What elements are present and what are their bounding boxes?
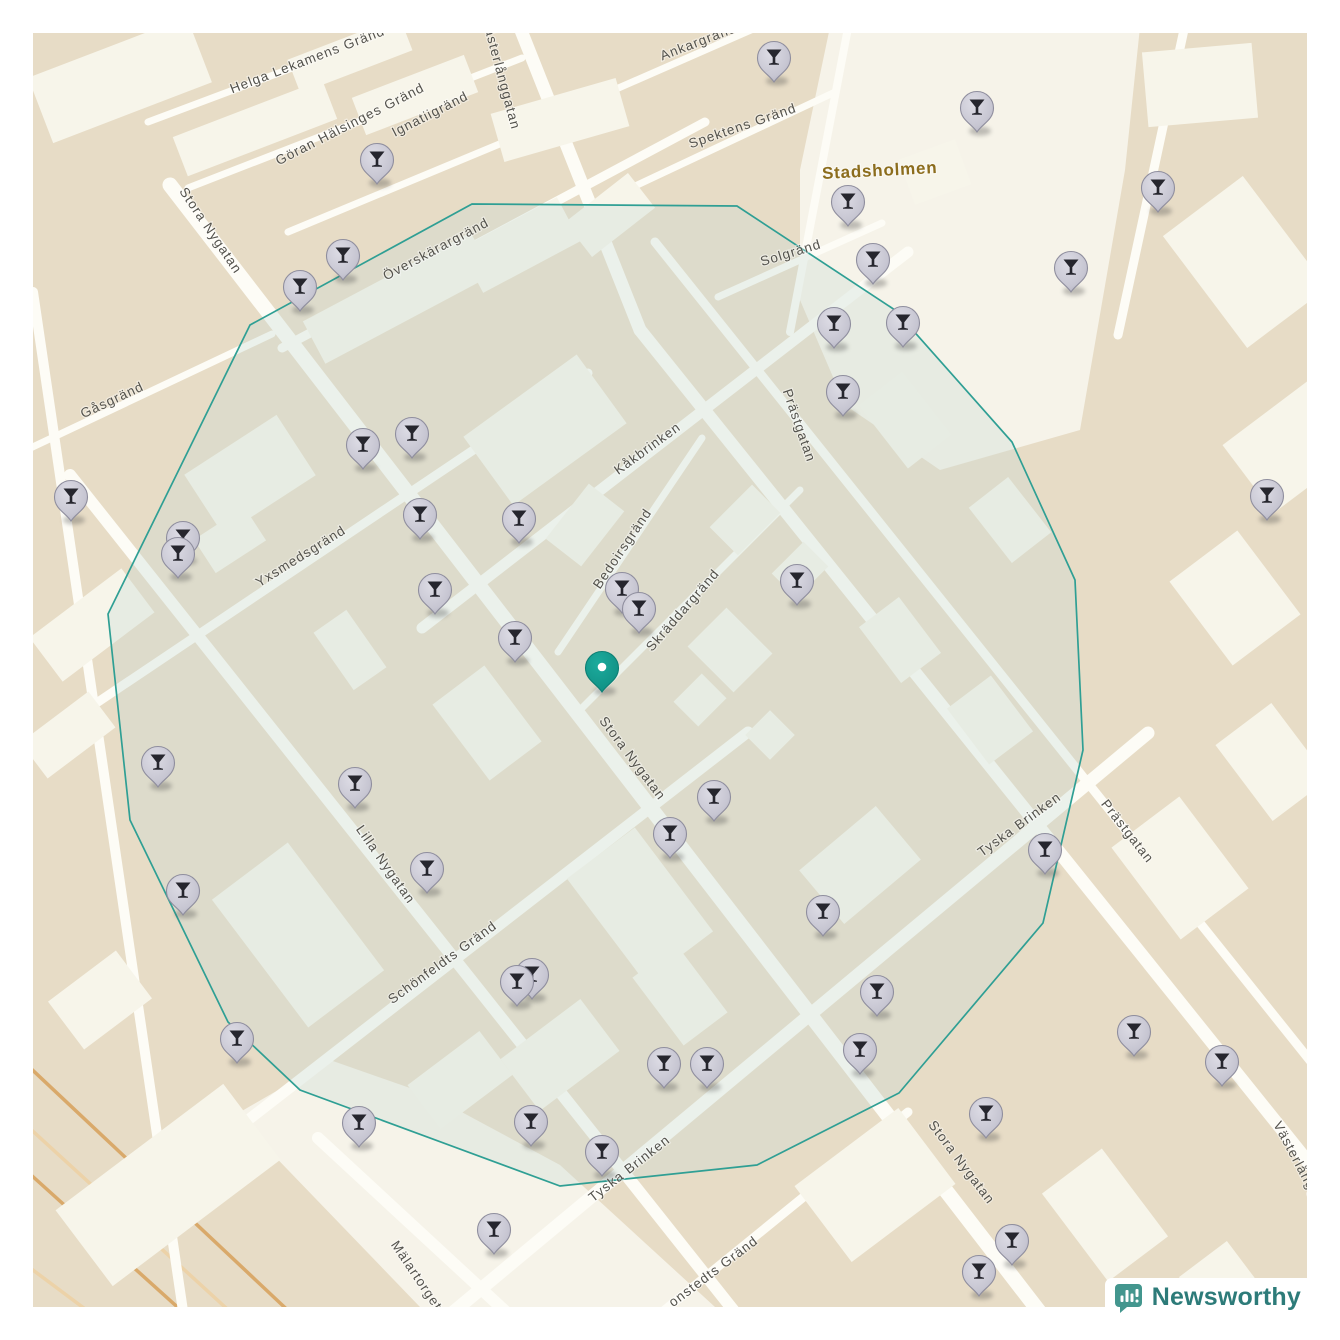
map-canvas: Helga Lekamens GrändGöran Hälsinges Grän… — [0, 0, 1340, 1340]
frame-margin — [1307, 33, 1340, 1307]
frame-margin — [0, 33, 33, 1307]
attribution-chip[interactable]: Newsworthy — [1105, 1278, 1313, 1317]
attribution-label: Newsworthy — [1152, 1283, 1301, 1312]
map-page: Helga Lekamens GrändGöran Hälsinges Grän… — [0, 0, 1340, 1340]
building — [1142, 43, 1258, 127]
frame-margin — [0, 0, 1340, 33]
newsworthy-logo-icon — [1113, 1282, 1144, 1313]
